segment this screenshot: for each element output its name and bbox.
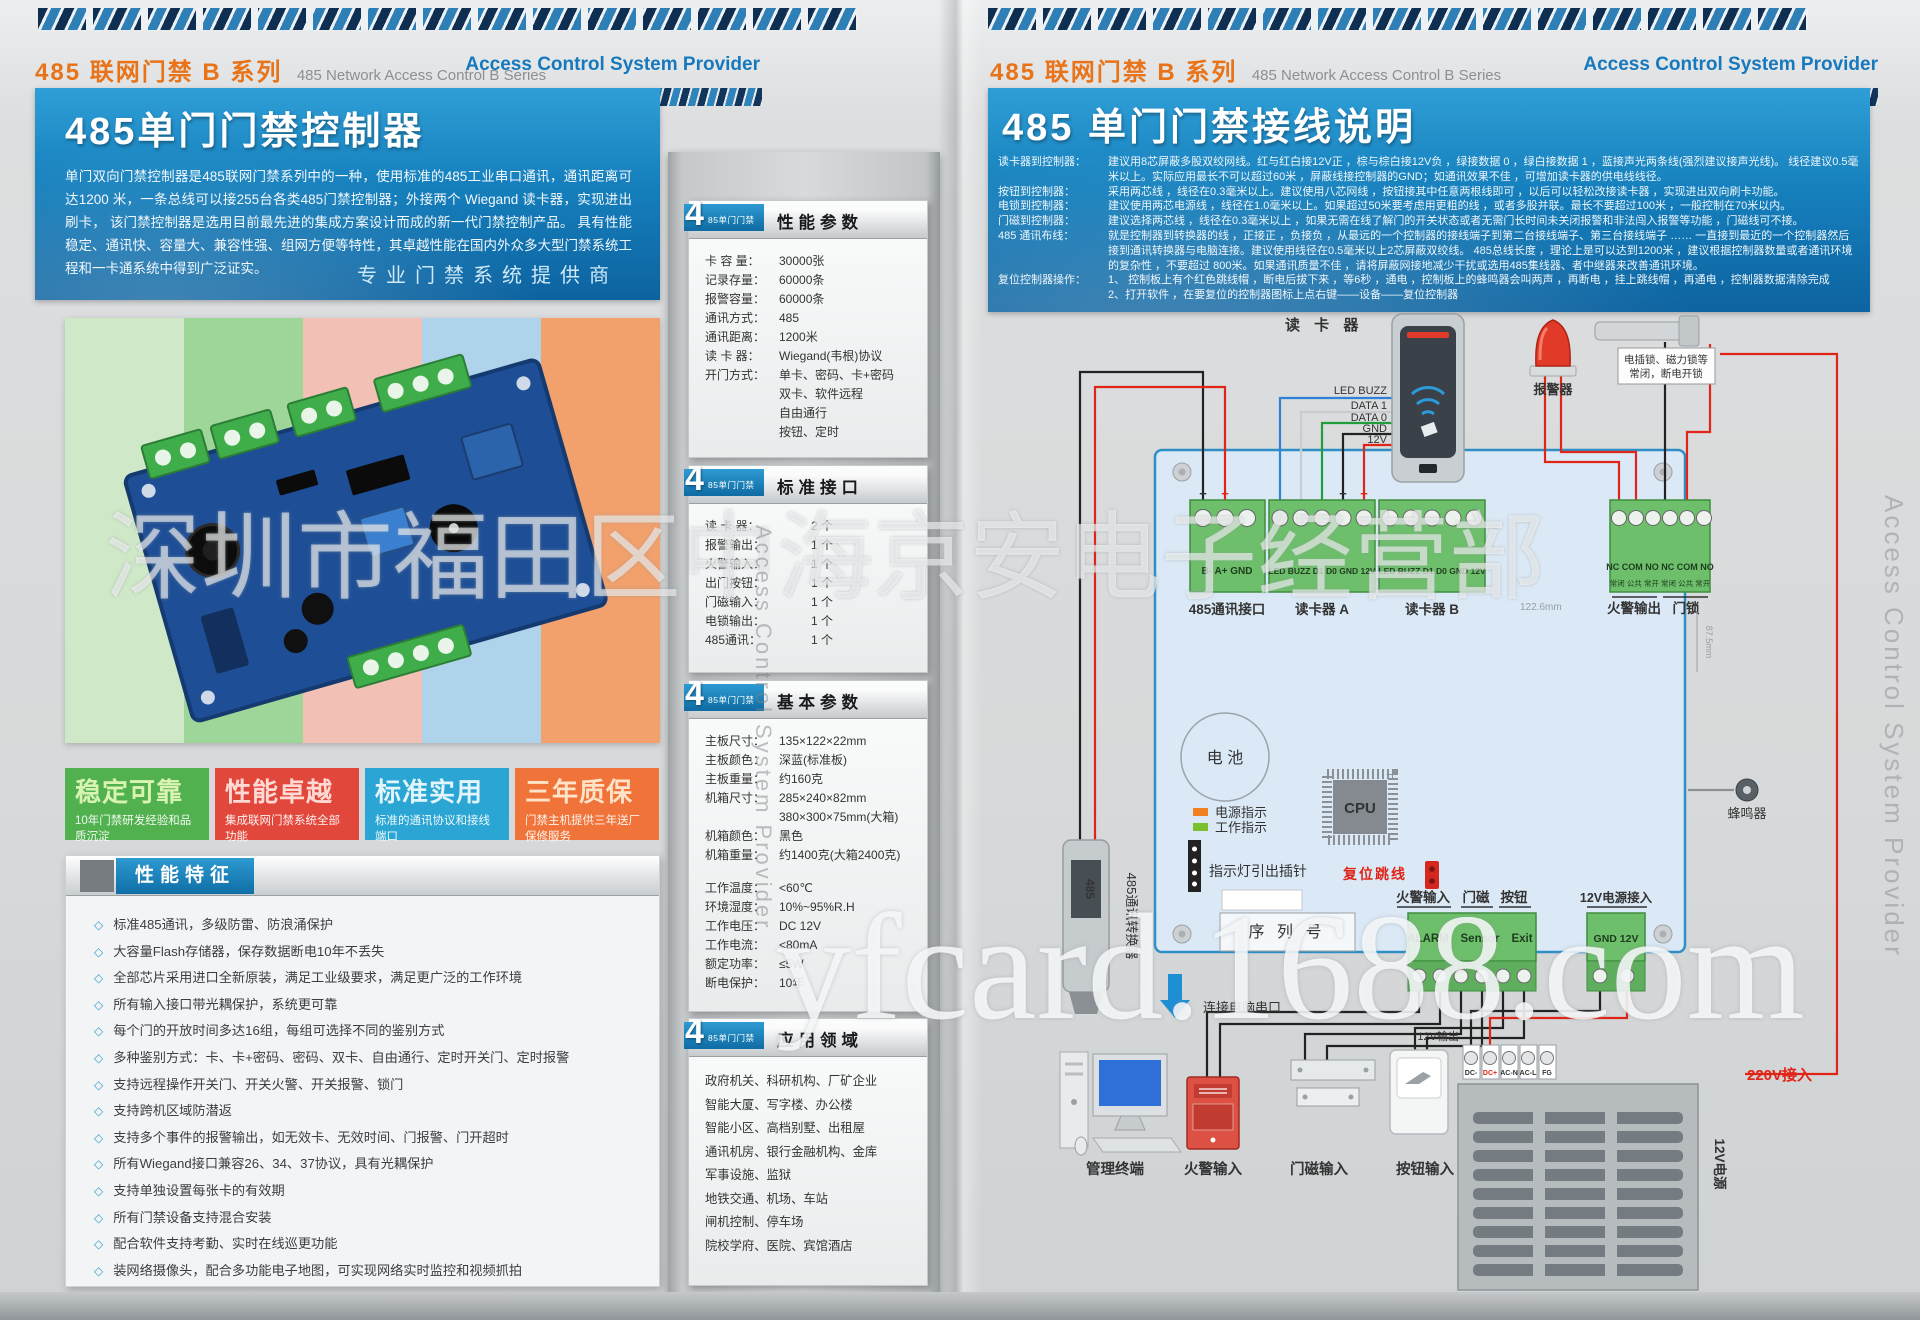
wiring-diagram: 读 卡 器 LED BUZZ DATA 1 DATA 0 GND 12V 报警器 (975, 312, 1910, 1302)
series-tab: 4 85单门门禁 (684, 469, 764, 496)
svg-text:485: 485 (1083, 879, 1097, 899)
series-tab: 4 85单门门禁 (684, 684, 764, 711)
plus-mark: + (1221, 486, 1229, 501)
svg-text:按钮: 按钮 (1501, 889, 1529, 905)
electric-lock-device: 电插锁、磁力锁等 常闭，断电开锁 (1595, 316, 1715, 384)
provider-text: Access Control System Provider (465, 54, 760, 76)
selling-point-stable: 稳定可靠 10年门禁研发经验和品质沉淀 (65, 768, 209, 840)
section-title: 性能参数 (777, 209, 863, 237)
svg-text:DC-: DC- (1465, 1070, 1478, 1077)
minus-mark: − (1199, 486, 1207, 501)
card-reader-label: 读 卡 器 (1285, 316, 1363, 334)
diamond-bullet-icon: ◇ (94, 918, 103, 932)
diamond-bullet-icon: ◇ (94, 1024, 103, 1038)
features-panel: 性能特征 ◇标准485通讯，多级防雷、防浪涌保护 ◇大容量Flash存储器，保存… (65, 855, 660, 1287)
svg-text:DATA 1: DATA 1 (1351, 400, 1387, 412)
right-page-title: 485 单门门禁接线说明 (998, 88, 1860, 155)
fire-out-label: 火警输出 (1607, 600, 1661, 616)
diamond-bullet-icon: ◇ (94, 1211, 103, 1225)
wiring-note: 复位控制器操作：1、 控制板上有个红色跳线帽 ，断电后拔下来 ，等6秒 ，通电 … (998, 273, 1860, 303)
selling-point-desc: 门禁主机提供三年送厂保修服务 (525, 813, 651, 845)
plus-mark: + (1360, 486, 1368, 501)
svg-text:CPU: CPU (1344, 800, 1376, 817)
diamond-bullet-icon: ◇ (94, 1131, 103, 1145)
application-line: 智能大厦、写字楼、办公楼 (705, 1094, 919, 1118)
feature-item: ◇每个门的开放时间多达16组，每组可选择不同的鉴别方式 (94, 1018, 639, 1045)
svg-text:B- A+ GND: B- A+ GND (1201, 566, 1252, 577)
svg-text:电 池: 电 池 (1207, 749, 1243, 767)
diamond-bullet-icon: ◇ (94, 971, 103, 985)
svg-text:NC COM NO NC COM NO: NC COM NO NC COM NO (1606, 562, 1714, 572)
series-title-en: 485 Network Access Control B Series (1252, 67, 1501, 84)
svg-text:12V: 12V (1367, 434, 1387, 446)
diamond-bullet-icon: ◇ (94, 1184, 103, 1198)
feature-item: ◇所有Wiegand接口兼容26、34、37协议，具有光耦保护 (94, 1151, 639, 1178)
svg-text:序 列 号: 序 列 号 (1249, 923, 1326, 941)
feature-item: ◇支持多个事件的报警输出，如无效卡、无效时间、门报警、门开超时 (94, 1125, 639, 1152)
svg-text:LED BUZZ D1 D0 GND 12V: LED BUZZ D1 D0 GND 12V (1378, 566, 1486, 576)
panel-standard-interfaces: 4 85单门门禁 标准接口 读 卡 器：2 个 报警输出：1 个 火警输入：1 … (688, 465, 928, 673)
application-line: 军事设施、监狱 (705, 1164, 919, 1188)
selling-point-desc: 10年门禁研发经验和品质沉淀 (75, 813, 201, 845)
sheet-bottom-edge (0, 1292, 1920, 1320)
slogan-text: 专业门禁系统提供商 (357, 259, 618, 288)
header-left: 485 联网门禁 B 系列 485 Network Access Control… (35, 52, 760, 86)
top-stripe-band-left (38, 8, 858, 30)
button-device-label: 按钮输入 (1396, 1160, 1454, 1178)
magnet-device-label: 门磁输入 (1290, 1160, 1348, 1178)
psu-side-label: 12V电源 (1712, 1138, 1728, 1190)
selling-point-title: 标准实用 (375, 772, 501, 809)
features-header: 性能特征 (66, 856, 659, 896)
serial-port-label: 连接电脑串口 (1203, 1000, 1281, 1015)
section-title: 应用领域 (777, 1027, 863, 1055)
svg-text:AC-L: AC-L (1520, 1070, 1537, 1077)
reader-b-label: 读卡器 B (1405, 601, 1459, 617)
work-led-icon (1193, 823, 1208, 831)
series-title-cn: 485 联网门禁 B 系列 (990, 59, 1237, 86)
terminal-block-power: GND 12V (1587, 913, 1645, 991)
left-hero: 485单门门禁控制器 单门双向门禁控制器是485联网门禁系列中的一种，使用标准的… (35, 88, 660, 300)
cpu-chip: CPU (1327, 774, 1393, 840)
feature-item: ◇装网络摄像头，配合多功能电子地图，可实现网络实时监控和视频抓拍 (94, 1258, 639, 1285)
ac220-label: 220V接入 (1747, 1066, 1812, 1084)
pcb-product-photo (65, 318, 660, 743)
selling-point-title: 性能卓越 (225, 772, 351, 809)
wiring-note: 按钮到控制器：采用两芯线 ，线径在0.3毫米以上。建议使用八芯网线 ，按钮接其中… (998, 185, 1860, 200)
fire-alarm-device: 火警输入 (1184, 1077, 1242, 1178)
wiring-note: 485 通讯布线：就是控制器到转换器的线 ，正接正 ，负接负 ，从最远的一个控制… (998, 229, 1860, 273)
terminal-block-inputs: ALARM Sensor Exit (1407, 913, 1536, 991)
panel-application-areas: 4 85单门门禁 应用领域 政府机关、科研机构、厂矿企业 智能大厦、写字楼、办公… (688, 1018, 928, 1286)
svg-text:AC-N: AC-N (1500, 1070, 1518, 1077)
monitor-screen (1099, 1060, 1161, 1106)
diamond-bullet-icon: ◇ (94, 1237, 103, 1251)
selling-point-title: 稳定可靠 (75, 772, 201, 809)
fire-device-label: 火警输入 (1184, 1160, 1242, 1178)
svg-text:电源指示: 电源指示 (1215, 805, 1267, 820)
application-line: 院校学府、医院、宾馆酒店 (705, 1235, 919, 1259)
svg-text:复位跳线: 复位跳线 (1342, 866, 1407, 882)
selling-point-desc: 标准的通讯协议和接线端口 (375, 813, 501, 845)
management-pc: 管理终端 (1060, 1052, 1181, 1178)
feature-item: ◇标准485通讯，多级防雷、防浪涌保护 (94, 912, 639, 939)
panel-performance-params: 4 85单门门禁 性能参数 卡 容 量：30000张 记录存量：60000条 报… (688, 200, 928, 458)
svg-text:指示灯引出插针: 指示灯引出插针 (1209, 863, 1307, 879)
tab-label: 85单门门禁 (708, 694, 754, 706)
485-converter-device: 485 485通讯转换器 (1063, 840, 1139, 1014)
exit-button-device: 按钮输入 (1390, 1050, 1454, 1178)
svg-text:LED BUZZ: LED BUZZ (1334, 385, 1387, 397)
provider-text: Access Control System Provider (1583, 54, 1878, 76)
tab-label: 85单门门禁 (708, 479, 754, 491)
brochure-sheet: 485 联网门禁 B 系列 485 Network Access Control… (0, 0, 1920, 1320)
svg-text:12V电源接入: 12V电源接入 (1580, 890, 1653, 905)
selling-point-title: 三年质保 (525, 772, 651, 809)
selling-point-performance: 性能卓越 集成联网门禁系统全部功能 (215, 768, 359, 840)
svg-text:87.5mm: 87.5mm (1704, 626, 1714, 659)
svg-text:LED BUZZ D1 D0 GND 12V: LED BUZZ D1 D0 GND 12V (1268, 566, 1376, 576)
height-dimension: 87.5mm (1697, 612, 1714, 672)
svg-text:FG: FG (1542, 1070, 1552, 1077)
series-tab: 4 85单门门禁 (684, 1022, 764, 1049)
application-line: 通讯机房、银行金融机构、金库 (705, 1141, 919, 1165)
svg-text:Exit: Exit (1511, 933, 1532, 945)
selling-point-desc: 集成联网门禁系统全部功能 (225, 813, 351, 845)
svg-text:DC+: DC+ (1483, 1070, 1497, 1077)
right-hero: 485 单门门禁接线说明 读卡器到控制器：建议用8芯屏蔽多股双绞网线。红与红白接… (988, 88, 1870, 312)
alarm-label: 报警器 (1533, 382, 1573, 397)
converter-label: 485通讯转换器 (1124, 873, 1139, 960)
minus-mark: − (1339, 486, 1347, 501)
top-stripe-band-right (988, 8, 1808, 30)
section-title: 标准接口 (777, 474, 863, 502)
left-page-title: 485单门门禁控制器 (35, 88, 660, 163)
svg-text:GND 12V: GND 12V (1594, 933, 1639, 945)
series-title-cn: 485 联网门禁 B 系列 (35, 59, 282, 86)
svg-text:电插锁、磁力锁等: 电插锁、磁力锁等 (1624, 353, 1708, 366)
power-led-icon (1193, 808, 1208, 816)
feature-item: ◇支持跨机区域防潜返 (94, 1098, 639, 1125)
feature-item: ◇大容量Flash存储器，保存数据断电10年不丢失 (94, 939, 639, 966)
selling-point-warranty: 三年质保 门禁主机提供三年送厂保修服务 (515, 768, 659, 840)
out12v-label: 12V输出 (1417, 1029, 1459, 1043)
down-arrow-icon (1160, 974, 1190, 1018)
diamond-bullet-icon: ◇ (94, 1051, 103, 1065)
features-title: 性能特征 (116, 858, 254, 894)
feature-item: ◇支持远程操作开关门、开关火警、开关报警、锁门 (94, 1072, 639, 1099)
feature-item: ◇配合软件支持考勤、实时在线巡更功能 (94, 1231, 639, 1258)
diamond-bullet-icon: ◇ (94, 1104, 103, 1118)
svg-text:Sensor: Sensor (1461, 933, 1501, 945)
section-title: 基本参数 (777, 689, 863, 717)
tab-number: 4 (685, 1013, 704, 1052)
diamond-bullet-icon: ◇ (94, 1264, 103, 1278)
reader-a-label: 读卡器 A (1295, 601, 1349, 617)
diamond-bullet-icon: ◇ (94, 998, 103, 1012)
tab-label: 85单门门禁 (708, 1032, 754, 1044)
svg-text:工作指示: 工作指示 (1215, 820, 1267, 835)
panel-basic-params: 4 85单门门禁 基本参数 主板尺寸：135×122×22mm 主板颜色：深蓝(… (688, 680, 928, 1012)
svg-text:门磁: 门磁 (1463, 889, 1491, 905)
wiring-note: 读卡器到控制器：建议用8芯屏蔽多股双绞网线。红与红白接12V正 ，棕与棕白接12… (998, 155, 1860, 185)
diamond-bullet-icon: ◇ (94, 1078, 103, 1092)
width-dimension: 122.6mm (1520, 602, 1562, 613)
series-tab: 4 85单门门禁 (684, 204, 764, 231)
tb485-label: 485通讯接口 (1189, 601, 1266, 617)
door-magnet-device: 门磁输入 (1290, 1060, 1375, 1178)
tab-label: 85单门门禁 (708, 214, 754, 226)
page-fold (938, 0, 982, 1320)
header-right: 485 联网门禁 B 系列 485 Network Access Control… (990, 52, 1878, 86)
selling-point-standard: 标准实用 标准的通讯协议和接线端口 (365, 768, 509, 840)
svg-text:火警输入: 火警输入 (1396, 889, 1450, 905)
header-accent-square (80, 860, 114, 892)
pc-label: 管理终端 (1086, 1160, 1144, 1178)
wiring-note: 电锁到控制器：建议使用两芯电源线 ，线径在1.0毫米以上。如果超过50米要考虑用… (998, 199, 1860, 214)
svg-text:ALARM: ALARM (1407, 933, 1449, 945)
alarm-siren-device: 报警器 (1530, 320, 1576, 397)
feature-item: ◇全部芯片采用进口全新原装，满足工业级要求，满足更广泛的工作环境 (94, 965, 639, 992)
wiring-note: 门磁到控制器：建议选择两芯线 ，线径在0.3毫米以上 ，如果无需在线了解门的开关… (998, 214, 1860, 229)
small-label-box (1222, 890, 1302, 910)
feature-item: ◇支持单独设置每张卡的有效期 (94, 1178, 639, 1205)
svg-text:常闭 公共 常开 常闭 公共 常开: 常闭 公共 常开 常闭 公共 常开 (1610, 579, 1711, 588)
application-line: 闸机控制、停车场 (705, 1211, 919, 1235)
svg-text:蜂鸣器: 蜂鸣器 (1727, 806, 1766, 821)
features-list: ◇标准485通讯，多级防雷、防浪涌保护 ◇大容量Flash存储器，保存数据断电1… (66, 896, 659, 1284)
serial-number-box: 序 列 号 (1220, 913, 1355, 951)
power-supply-unit: 12V输出 DC- DC+ AC-N AC-L FG 220V接入 12V电源 (1417, 1029, 1812, 1290)
tab-number: 4 (685, 195, 704, 234)
feature-item: ◇所有门禁设备支持混合安装 (94, 1205, 639, 1232)
svg-text:常闭，断电开锁: 常闭，断电开锁 (1629, 367, 1703, 380)
buzzer: 蜂鸣器 (1727, 779, 1766, 821)
tab-number: 4 (685, 460, 704, 499)
diamond-bullet-icon: ◇ (94, 945, 103, 959)
feature-item: ◇所有输入接口带光耦保护，系统更可靠 (94, 992, 639, 1019)
reader-led-strip (1407, 332, 1449, 338)
application-line: 地铁交通、机场、车站 (705, 1188, 919, 1212)
bottom-io-labels: 火警输入 门磁 按钮 12V电源接入 (1396, 889, 1653, 907)
feature-item: ◇多种鉴别方式：卡、卡+密码、密码、双卡、自由通行、定时开关门、定时报警 (94, 1045, 639, 1072)
application-line: 政府机关、科研机构、厂矿企业 (705, 1070, 919, 1094)
tab-number: 4 (685, 675, 704, 714)
lock-out-label: 门锁 (1673, 600, 1701, 616)
diamond-bullet-icon: ◇ (94, 1157, 103, 1171)
application-line: 智能小区、高档别墅、出租屋 (705, 1117, 919, 1141)
